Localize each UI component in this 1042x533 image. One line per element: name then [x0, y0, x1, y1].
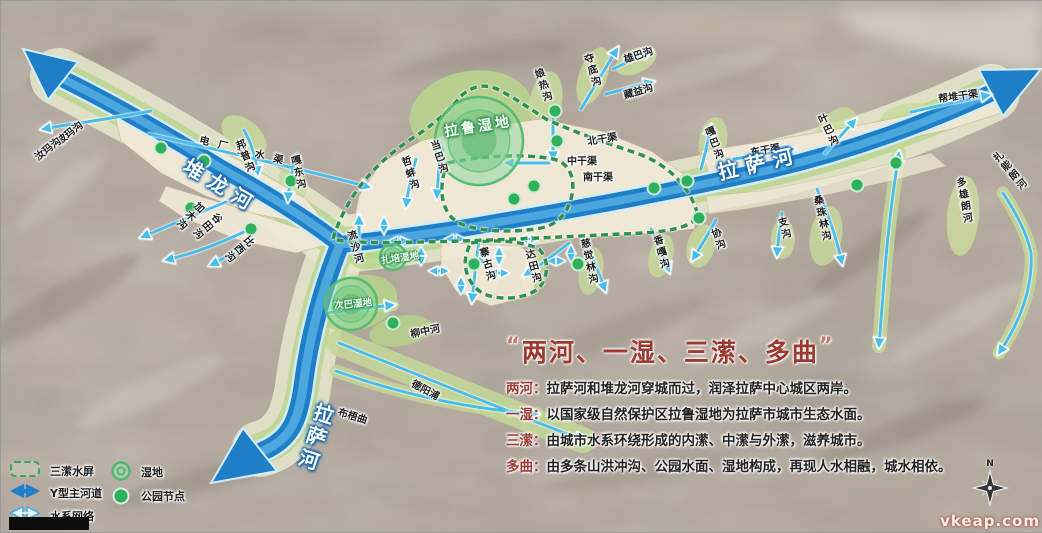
park-node-dot [387, 317, 400, 330]
park-node-dot [285, 175, 298, 188]
park-node-dot [198, 155, 211, 168]
annotation-desc: 由多条山洪冲沟、公园水面、湿地构成，再现人水相融，城水相依。 [547, 459, 952, 475]
park-node-icon [109, 484, 133, 508]
park-node-dot [551, 135, 564, 148]
annotation-line: 一湿：以国家级自然保护区拉鲁湿地为拉萨市城市生态水面。 [506, 402, 1041, 428]
annotation-desc: 以国家级自然保护区拉鲁湿地为拉萨市城市生态水面。 [547, 407, 871, 423]
annotation-line: 三潆：由城市水系环绕形成的内潆、中潆与外潆，滋养城市。 [506, 428, 1041, 454]
dashed-barrier-icon [10, 461, 40, 477]
park-node-dot [468, 258, 481, 271]
main-river-arrow-icon [7, 483, 43, 499]
park-node-dot [681, 175, 694, 188]
park-node-dot [572, 258, 585, 271]
quote-open: “ [506, 333, 522, 357]
park-node-dot [155, 142, 168, 155]
annotation-desc: 拉萨河和堆龙河穿城而过，润泽拉萨中心城区两岸。 [547, 381, 858, 397]
park-node-dot [185, 202, 198, 215]
map-title: “两河、一湿、三潆、多曲” [506, 333, 1041, 369]
wetland-circle-core [461, 123, 496, 158]
park-node-dot [648, 182, 661, 195]
annotation-desc: 由城市水系环绕形成的内潆、中潆与外潆，滋养城市。 [547, 433, 871, 449]
annotation-term: 两河： [506, 381, 547, 397]
map-image: 波玛沟汝玛沟电厂引水渠邦普沟嘎东沟堆龙河加木沟谷田沟比西沟流沙河哲蚌沟当巴沟拉鲁… [0, 0, 1042, 533]
wetland-circle-icon [109, 459, 133, 483]
park-node-dot [549, 105, 562, 118]
wetland-circle-core [388, 252, 398, 262]
annotation-line: 两河：拉萨河和堆龙河穿城而过，润泽拉萨中心城区两岸。 [506, 376, 1041, 402]
redacted-credit-bar [9, 517, 89, 530]
annotation-line: 多曲：由多条山洪冲沟、公园水面、湿地构成，再现人水相融，城水相依。 [506, 454, 1041, 480]
park-node-dot [508, 193, 521, 206]
park-node-dot [851, 179, 864, 192]
annotation-term: 多曲： [506, 459, 547, 475]
legend-label: 三潆水屏 [50, 463, 94, 479]
legend-label: 公园节点 [141, 488, 185, 504]
park-node-dot [528, 180, 541, 193]
annotation-term: 一湿： [506, 407, 547, 423]
compass-area: N [967, 461, 1013, 513]
watermark: vkeap.com [940, 512, 1040, 530]
annotation-block: “两河、一湿、三潆、多曲” 两河：拉萨河和堆龙河穿城而过，润泽拉萨中心城区两岸。… [506, 333, 1041, 480]
legend-label: 湿地 [141, 464, 163, 480]
park-node-dot [890, 157, 903, 170]
park-node-dot [693, 212, 706, 225]
quote-close: ” [819, 333, 835, 357]
legend: 三潆水屏 Y型主河道 水系网络 湿地 公园节点 [1, 451, 201, 523]
annotation-term: 三潆： [506, 433, 547, 449]
wetland-circle-core [341, 294, 362, 315]
compass-north-label: N [986, 459, 994, 469]
legend-label: Y型主河道 [50, 485, 102, 501]
park-node-dot [245, 223, 258, 236]
